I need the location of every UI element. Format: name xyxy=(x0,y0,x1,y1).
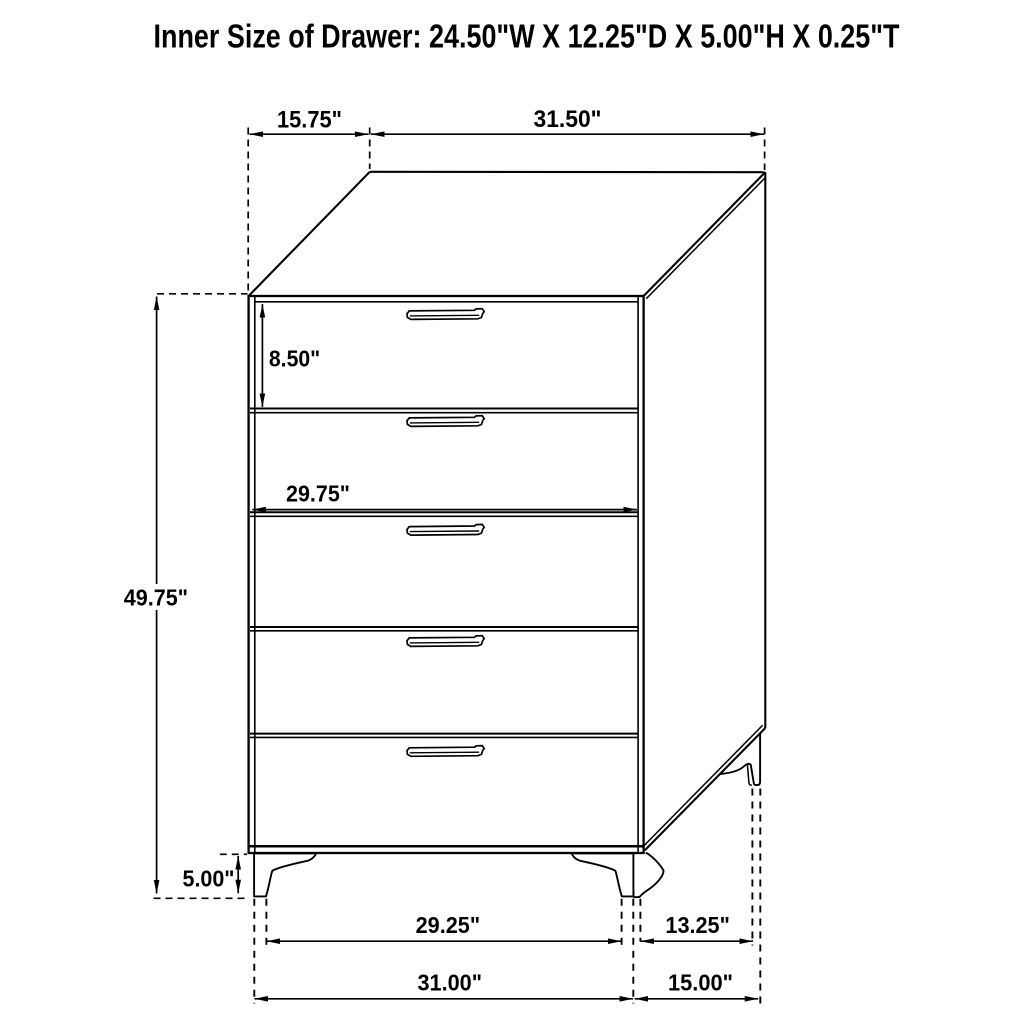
svg-text:29.25": 29.25" xyxy=(416,912,481,938)
svg-text:15.00": 15.00" xyxy=(668,969,733,995)
svg-text:5.00": 5.00" xyxy=(183,866,235,892)
svg-text:31.00": 31.00" xyxy=(418,969,483,995)
svg-text:Inner Size of Drawer: 24.50"W: Inner Size of Drawer: 24.50"W X 12.25"D … xyxy=(154,19,900,56)
svg-text:13.25": 13.25" xyxy=(665,912,730,938)
svg-text:31.50": 31.50" xyxy=(534,106,602,133)
svg-text:8.50": 8.50" xyxy=(269,345,320,371)
svg-text:15.75": 15.75" xyxy=(277,106,342,133)
svg-text:49.75": 49.75" xyxy=(124,585,188,611)
svg-text:29.75": 29.75" xyxy=(286,480,350,506)
